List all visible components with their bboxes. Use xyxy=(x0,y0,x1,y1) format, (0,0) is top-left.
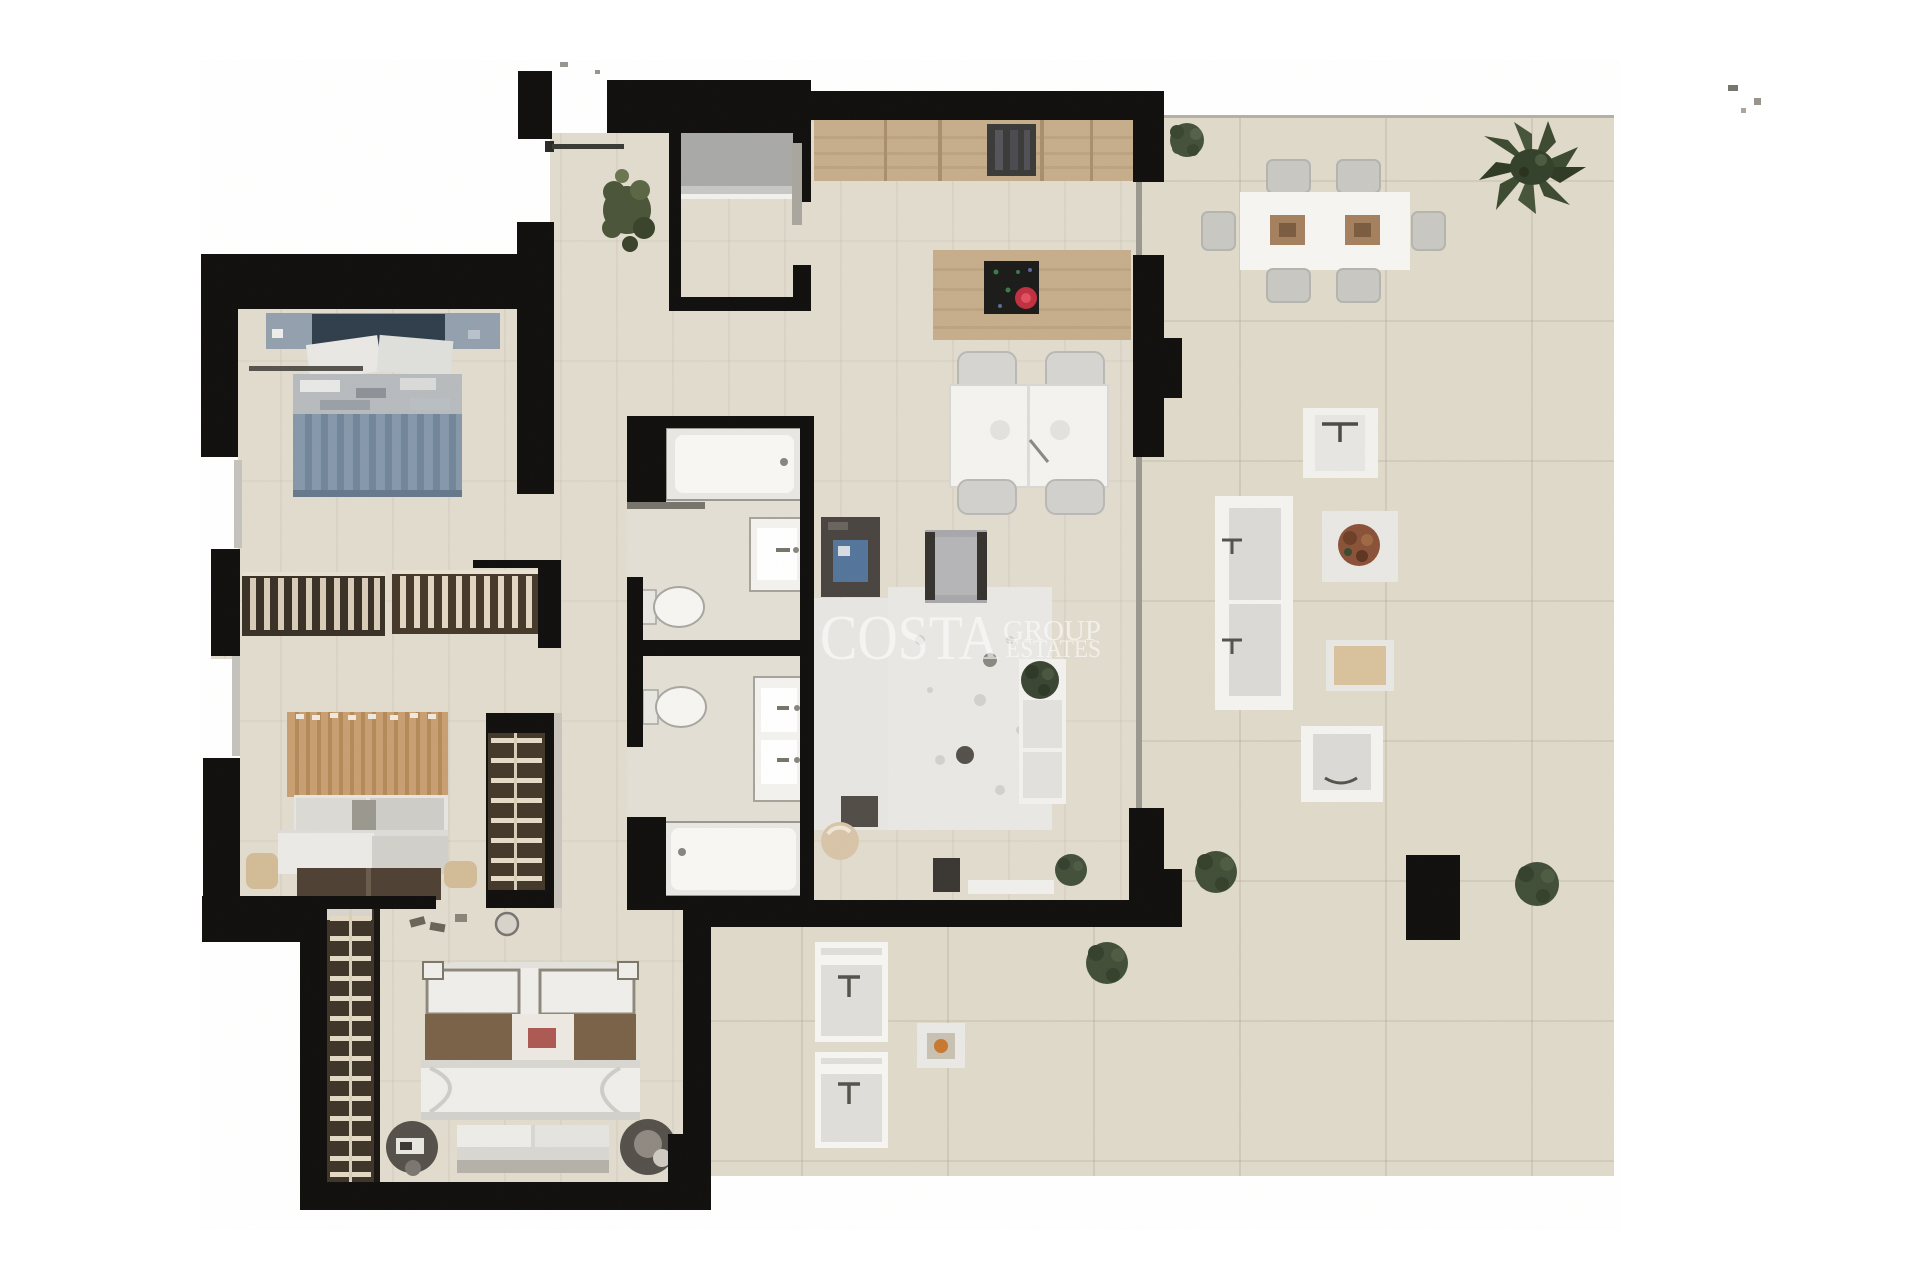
svg-text:ESTATES: ESTATES xyxy=(1006,636,1101,663)
svg-text:COSTA: COSTA xyxy=(820,602,999,673)
